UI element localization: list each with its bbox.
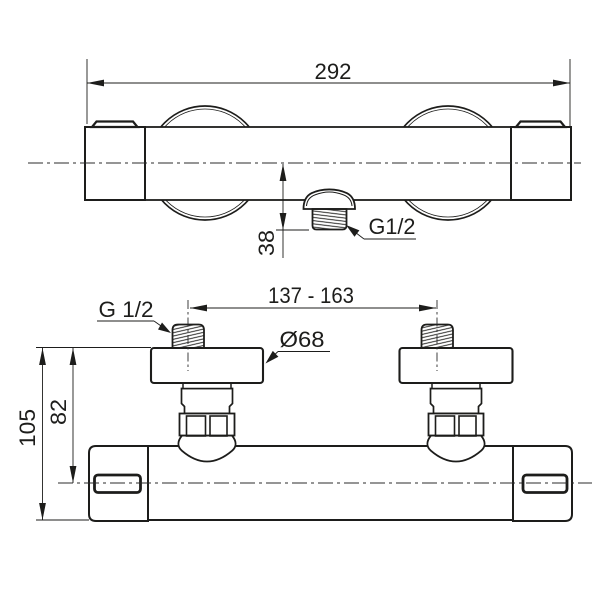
- arrowhead: [419, 305, 436, 312]
- arrowhead: [70, 466, 77, 483]
- label-outlet-thread: G1/2: [346, 214, 416, 239]
- dimension-overall-width: 292: [87, 59, 570, 126]
- arrowhead: [87, 80, 104, 87]
- handle-marker-right: [516, 122, 565, 128]
- arrowhead: [280, 213, 287, 230]
- outlet-thread: [313, 209, 347, 230]
- technical-drawing-page: 292 38 G1/2: [0, 0, 600, 600]
- union-neck: [431, 389, 482, 414]
- s-union-right: [400, 300, 513, 462]
- handle-right-front: [511, 127, 571, 200]
- leader-arrowhead: [346, 225, 359, 237]
- arrowhead: [190, 305, 207, 312]
- dim-292-label: 292: [315, 59, 352, 84]
- dim-82-label: 82: [46, 399, 71, 425]
- handle-grip-slot-left: [95, 475, 141, 493]
- escutcheon-diameter-label: Ø68: [280, 327, 325, 352]
- dim-137-163-label: 137 - 163: [268, 283, 354, 308]
- handle-left-front: [85, 127, 145, 200]
- dim-38-label: 38: [254, 230, 279, 256]
- handle-grip-slot-right: [523, 475, 567, 493]
- union-neck: [182, 389, 233, 414]
- dim-105-label: 105: [15, 409, 40, 447]
- dimension-overall-height: 105: [15, 348, 46, 520]
- label-escutcheon-diameter: Ø68: [266, 327, 331, 364]
- arrowhead: [553, 80, 570, 87]
- plan-view: 137 - 163 G 1/2 Ø68 105: [15, 283, 592, 521]
- arrowhead: [70, 348, 77, 365]
- leader-arrowhead: [158, 323, 171, 334]
- dimension-connection-centers: 137 - 163: [190, 283, 436, 311]
- inlet-thread-label: G 1/2: [99, 297, 154, 322]
- escutcheon-right: [400, 348, 513, 383]
- outlet-thread-label: G1/2: [369, 214, 416, 239]
- escutcheon-left: [151, 348, 263, 383]
- shower-mixer-technical-drawing: 292 38 G1/2: [0, 0, 600, 600]
- handle-marker-left: [92, 122, 138, 128]
- arrowhead: [39, 348, 46, 365]
- arrowhead: [39, 503, 46, 520]
- s-union-left: [151, 300, 263, 462]
- dimension-center-height: 82: [46, 348, 76, 483]
- label-inlet-thread: G 1/2: [97, 297, 171, 333]
- front-view: 292 38 G1/2: [28, 59, 581, 258]
